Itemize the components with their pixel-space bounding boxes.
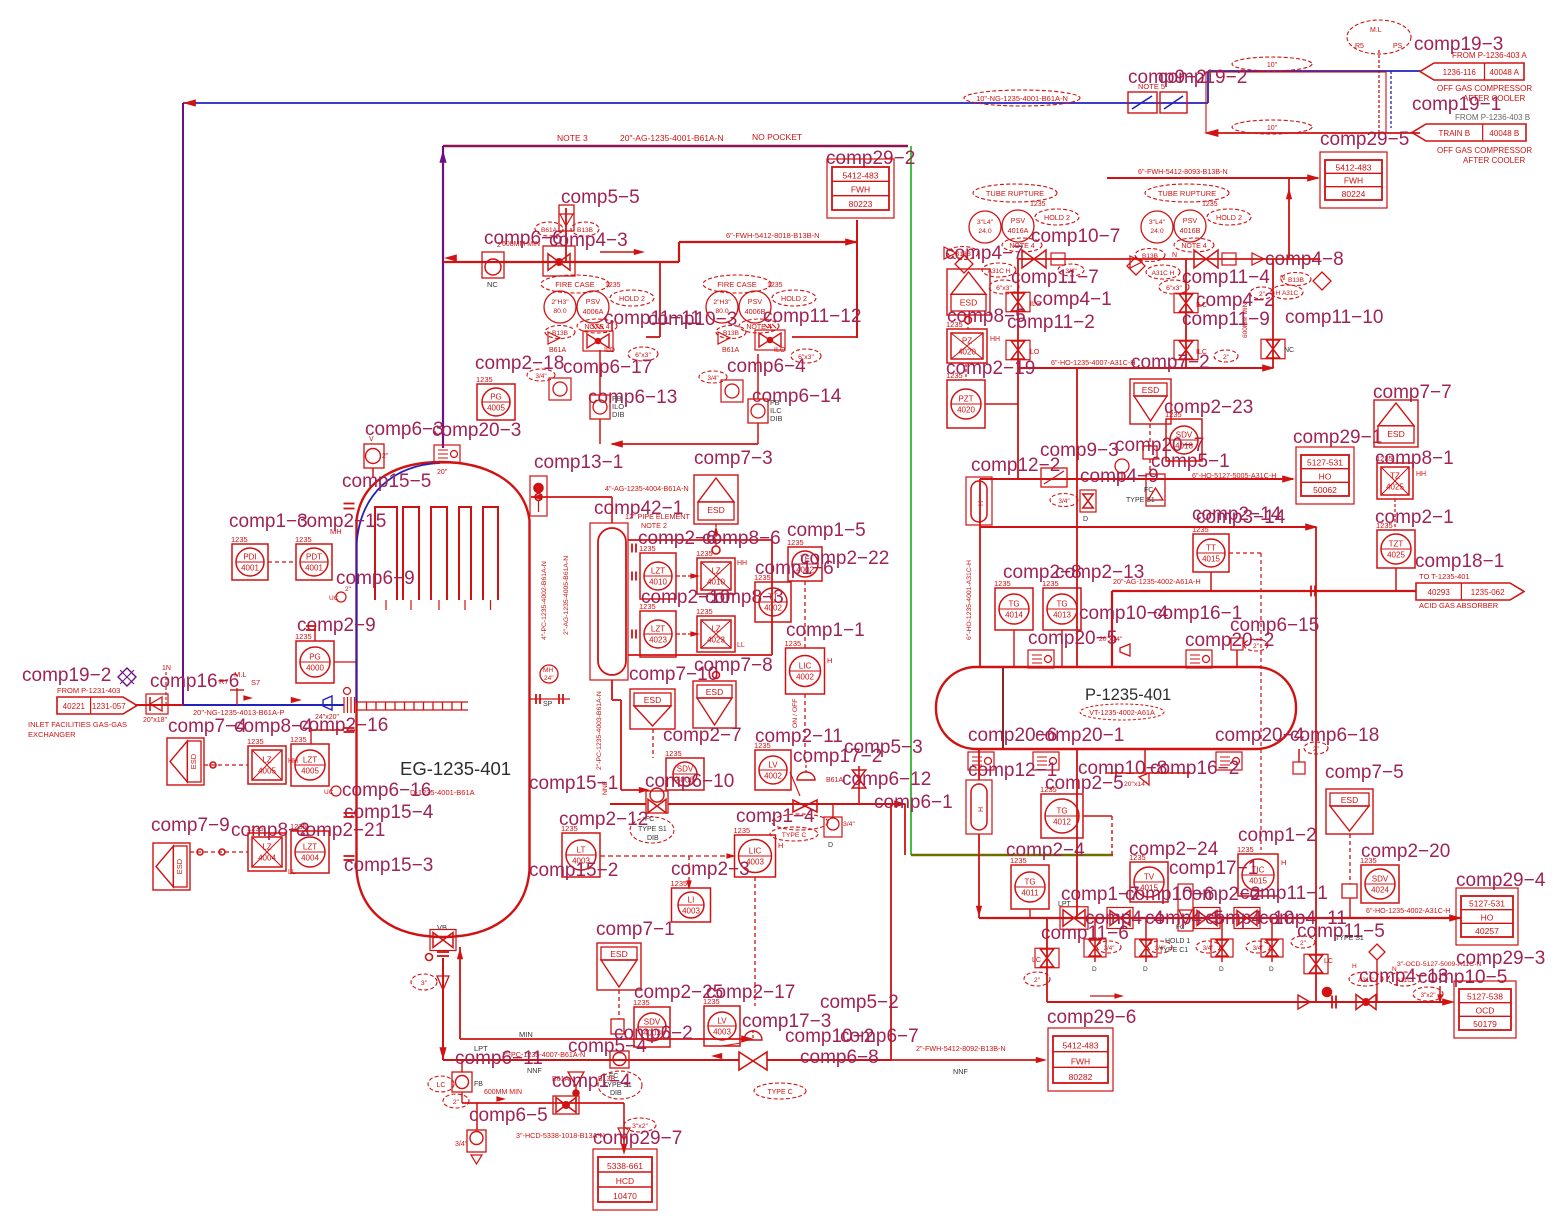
svg-text:20"x14": 20"x14"	[1099, 636, 1123, 643]
svg-text:A31C: A31C	[1358, 977, 1375, 984]
svg-text:LC: LC	[437, 1082, 446, 1089]
svg-text:HOLD 2: HOLD 2	[781, 294, 807, 303]
svg-text:10470: 10470	[613, 1191, 637, 1201]
svg-text:4006A: 4006A	[583, 307, 604, 316]
svg-text:10": 10"	[1267, 62, 1278, 69]
svg-text:SP: SP	[543, 701, 553, 708]
svg-text:6"-HO-5127-5005-A31C-H: 6"-HO-5127-5005-A31C-H	[1192, 471, 1276, 480]
svg-text:comp11−7: comp11−7	[1011, 267, 1099, 288]
svg-text:1235: 1235	[665, 749, 682, 758]
svg-text:PDT: PDT	[306, 553, 322, 562]
svg-text:80223: 80223	[849, 199, 873, 209]
svg-text:TYPE S1: TYPE S1	[1335, 935, 1364, 942]
svg-text:comp8−6: comp8−6	[702, 528, 781, 549]
svg-text:5412-483: 5412-483	[1063, 1041, 1099, 1051]
svg-text:20"x18": 20"x18"	[143, 717, 168, 724]
svg-text:40048 B: 40048 B	[1489, 129, 1519, 138]
svg-text:M.L: M.L	[1370, 27, 1382, 34]
svg-text:4012: 4012	[1053, 818, 1071, 827]
svg-text:4005: 4005	[487, 404, 505, 413]
svg-text:3/4": 3/4"	[1058, 498, 1070, 505]
svg-text:comp2−13: comp2−13	[1055, 562, 1144, 583]
svg-text:H: H	[1352, 963, 1357, 970]
svg-text:4002: 4002	[796, 673, 814, 682]
svg-text:OFF GAS COMPRESSOR: OFF GAS COMPRESSOR	[1437, 146, 1532, 155]
svg-text:LZ: LZ	[262, 843, 271, 852]
svg-text:N: N	[1172, 252, 1177, 259]
svg-text:comp16−1: comp16−1	[1153, 603, 1242, 624]
svg-text:20"-AG-1235-4001-B61A-N: 20"-AG-1235-4001-B61A-N	[620, 133, 724, 143]
svg-text:DIB: DIB	[612, 410, 625, 419]
svg-text:R7: R7	[219, 677, 229, 686]
svg-text:1235: 1235	[946, 320, 963, 329]
svg-text:3/4": 3/4"	[843, 821, 855, 828]
svg-text:1235: 1235	[1010, 856, 1027, 865]
svg-text:LZT: LZT	[303, 843, 317, 852]
svg-text:comp6−16: comp6−16	[342, 780, 431, 801]
svg-text:4010: 4010	[707, 578, 725, 587]
svg-text:ESD: ESD	[610, 949, 627, 959]
svg-text:NO POCKET: NO POCKET	[752, 132, 802, 142]
svg-text:comp2−7: comp2−7	[663, 725, 742, 746]
svg-text:ESD: ESD	[707, 505, 724, 515]
svg-text:1235: 1235	[561, 824, 578, 833]
svg-text:PG: PG	[309, 653, 321, 662]
svg-text:MIN: MIN	[519, 1030, 533, 1039]
svg-text:80.0: 80.0	[715, 308, 728, 315]
svg-text:comp1−4: comp1−4	[552, 1071, 631, 1092]
svg-text:4014: 4014	[1005, 611, 1023, 620]
svg-text:B61A: B61A	[826, 777, 843, 784]
svg-text:6"-HO-1235-4002-A31C-H: 6"-HO-1235-4002-A31C-H	[1366, 906, 1450, 915]
svg-text:D: D	[1269, 966, 1274, 973]
svg-text:3/4": 3/4"	[1104, 945, 1115, 952]
svg-text:PZ: PZ	[962, 337, 972, 346]
svg-text:comp6−17: comp6−17	[563, 357, 652, 378]
svg-text:2": 2"	[382, 453, 389, 460]
svg-text:3/4": 3/4"	[1155, 945, 1166, 952]
svg-text:1235: 1235	[1202, 201, 1218, 208]
svg-text:4016A: 4016A	[1008, 226, 1029, 235]
svg-text:3"L4": 3"L4"	[977, 219, 994, 226]
svg-text:HOLD 2: HOLD 2	[619, 294, 645, 303]
svg-text:24.0: 24.0	[978, 228, 991, 235]
svg-text:NC: NC	[1284, 347, 1294, 354]
svg-text:HOLD 2: HOLD 2	[1044, 213, 1070, 222]
svg-text:1235: 1235	[994, 579, 1011, 588]
svg-text:LV: LV	[768, 761, 778, 770]
svg-text:TT: TT	[768, 593, 778, 602]
svg-text:comp20−1: comp20−1	[1035, 725, 1124, 746]
svg-text:D: D	[1219, 966, 1224, 973]
svg-text:LO: LO	[1030, 349, 1040, 356]
svg-text:H: H	[1281, 858, 1286, 867]
svg-text:comp6−18: comp6−18	[1290, 725, 1379, 746]
svg-text:1235: 1235	[703, 997, 720, 1006]
svg-text:EG-1235-401: EG-1235-401	[400, 758, 511, 779]
svg-text:LV: LV	[717, 1017, 727, 1026]
svg-text:comp5−4: comp5−4	[568, 1036, 647, 1057]
svg-text:4"-AG-1235-4004-B61A-N: 4"-AG-1235-4004-B61A-N	[605, 484, 689, 493]
svg-text:2": 2"	[1034, 977, 1041, 984]
svg-text:comp29−7: comp29−7	[593, 1128, 682, 1149]
svg-text:1235: 1235	[1237, 845, 1254, 854]
svg-text:4016B: 4016B	[1180, 226, 1201, 235]
svg-text:2": 2"	[1253, 643, 1260, 650]
svg-text:1235-062: 1235-062	[1471, 588, 1505, 597]
svg-text:1235: 1235	[247, 737, 264, 746]
svg-text:1235: 1235	[295, 535, 312, 544]
svg-text:SDV: SDV	[1372, 875, 1389, 884]
svg-text:LT: LT	[577, 846, 586, 855]
svg-text:comp29−6: comp29−6	[1047, 1007, 1136, 1028]
svg-text:5412-483: 5412-483	[843, 170, 879, 180]
svg-text:LZT: LZT	[651, 625, 665, 634]
svg-text:PSV: PSV	[1183, 216, 1198, 225]
svg-text:2"H3": 2"H3"	[713, 299, 731, 306]
svg-text:2": 2"	[345, 586, 352, 593]
svg-text:comp2−11: comp2−11	[755, 726, 843, 747]
svg-text:5127-531: 5127-531	[1307, 458, 1343, 468]
svg-text:PSV: PSV	[586, 297, 601, 306]
svg-text:FIRE CASE: FIRE CASE	[717, 280, 757, 289]
svg-text:comp12−1: comp12−1	[968, 760, 1057, 781]
svg-text:5412-483: 5412-483	[1336, 162, 1372, 172]
svg-text:2": 2"	[1223, 354, 1230, 361]
svg-text:3/4": 3/4"	[1203, 945, 1214, 952]
svg-text:ILD: ILD	[604, 347, 615, 354]
svg-text:4004: 4004	[301, 854, 319, 863]
svg-text:4004: 4004	[258, 854, 276, 863]
svg-text:4003: 4003	[713, 1028, 731, 1037]
svg-text:4002: 4002	[764, 772, 782, 781]
svg-text:4023: 4023	[649, 636, 667, 645]
svg-text:comp1−3: comp1−3	[229, 511, 308, 532]
svg-text:HH: HH	[990, 336, 1000, 343]
svg-text:A11C: A11C	[1396, 977, 1412, 984]
svg-text:50062: 50062	[1313, 485, 1337, 495]
svg-text:1236-116: 1236-116	[1443, 68, 1477, 77]
svg-text:ESD: ESD	[189, 753, 198, 769]
svg-text:PSV: PSV	[748, 297, 763, 306]
svg-text:VB: VB	[437, 923, 447, 932]
svg-text:1235: 1235	[787, 538, 804, 547]
svg-text:10"-NG-1235-4001-B61A-N: 10"-NG-1235-4001-B61A-N	[976, 94, 1068, 103]
svg-text:comp7−5: comp7−5	[1325, 762, 1404, 783]
svg-text:ACID GAS ABSORBER: ACID GAS ABSORBER	[1419, 601, 1499, 610]
svg-text:600MM MIN: 600MM MIN	[502, 241, 540, 248]
svg-text:ILO: ILO	[774, 347, 786, 354]
svg-text:4024: 4024	[1371, 886, 1389, 895]
svg-text:comp29−1: comp29−1	[1293, 427, 1382, 448]
svg-text:comp11−2: comp11−2	[1007, 312, 1095, 333]
svg-text:SDV: SDV	[1176, 431, 1193, 440]
svg-text:HH: HH	[737, 560, 747, 567]
svg-text:1235: 1235	[290, 822, 307, 831]
svg-text:5338-661: 5338-661	[607, 1161, 643, 1171]
svg-text:4002: 4002	[764, 604, 782, 613]
svg-text:2"H3": 2"H3"	[551, 299, 569, 306]
svg-text:3"-HCD-5338-1018-B13A-N: 3"-HCD-5338-1018-B13A-N	[516, 1131, 605, 1140]
svg-text:LIC: LIC	[799, 662, 812, 671]
svg-text:80224: 80224	[1342, 189, 1366, 199]
svg-text:B13B: B13B	[1288, 277, 1304, 284]
svg-text:1231-057: 1231-057	[92, 702, 126, 711]
svg-text:comp2−15: comp2−15	[297, 511, 386, 532]
svg-text:B13B: B13B	[723, 330, 739, 337]
svg-text:comp6−4: comp6−4	[727, 356, 806, 377]
svg-text:LC: LC	[1324, 958, 1333, 965]
svg-text:4020: 4020	[957, 406, 975, 415]
svg-text:4001: 4001	[241, 564, 259, 573]
svg-text:TZ: TZ	[1390, 472, 1400, 481]
svg-text:comp7−8: comp7−8	[694, 655, 773, 676]
svg-text:comp9−3: comp9−3	[1040, 440, 1119, 461]
svg-text:40048 A: 40048 A	[1490, 68, 1520, 77]
svg-text:ILC: ILC	[1196, 302, 1207, 309]
svg-text:2": 2"	[453, 1099, 460, 1106]
svg-text:4018: 4018	[1175, 442, 1193, 451]
svg-text:1235: 1235	[734, 826, 751, 835]
svg-text:comp6−8: comp6−8	[800, 1047, 879, 1068]
svg-text:ESD: ESD	[1142, 385, 1159, 395]
svg-text:24": 24"	[544, 675, 554, 682]
svg-text:comp8−1: comp8−1	[1375, 448, 1454, 469]
svg-text:ESD: ESD	[706, 687, 723, 697]
svg-text:2": 2"	[1259, 291, 1266, 298]
svg-text:6"-FWH-5412-8018-B13B-N: 6"-FWH-5412-8018-B13B-N	[726, 231, 820, 240]
svg-text:comp19−2: comp19−2	[22, 665, 111, 686]
svg-text:LZT: LZT	[303, 756, 317, 765]
svg-text:2"-FWH-5412-8092-B13B-N: 2"-FWH-5412-8092-B13B-N	[916, 1044, 1006, 1053]
svg-text:comp18−1: comp18−1	[1415, 551, 1504, 572]
svg-text:4"-PC-1235-4002-B61A-N: 4"-PC-1235-4002-B61A-N	[541, 561, 548, 640]
svg-text:comp5−3: comp5−3	[844, 737, 923, 758]
svg-text:4013: 4013	[1053, 611, 1071, 620]
svg-text:NOTE 4: NOTE 4	[1181, 243, 1206, 250]
svg-text:TUBE RUPTURE: TUBE RUPTURE	[986, 189, 1044, 198]
svg-text:1235: 1235	[476, 375, 493, 384]
svg-text:4015: 4015	[1202, 555, 1220, 564]
svg-text:comp4−1: comp4−1	[1033, 289, 1112, 310]
svg-text:TG: TG	[1008, 600, 1019, 609]
svg-text:LIC: LIC	[749, 847, 762, 856]
svg-text:FIRE CASE: FIRE CASE	[555, 280, 595, 289]
svg-text:1235: 1235	[1030, 201, 1046, 208]
svg-text:1235: 1235	[1040, 785, 1057, 794]
svg-text:comp2−20: comp2−20	[1361, 841, 1450, 862]
svg-text:1235: 1235	[605, 282, 621, 289]
svg-text:comp29−5: comp29−5	[1320, 129, 1409, 150]
svg-text:H: H	[978, 807, 985, 812]
svg-text:S7: S7	[251, 678, 260, 687]
svg-text:TYPE S1: TYPE S1	[1126, 497, 1155, 504]
svg-text:ESD: ESD	[1341, 795, 1358, 805]
svg-text:EXCHANGER: EXCHANGER	[28, 730, 76, 739]
svg-text:2": 2"	[1313, 746, 1320, 753]
svg-text:AFTER COOLER: AFTER COOLER	[1463, 156, 1525, 165]
svg-text:4001: 4001	[305, 564, 323, 573]
svg-text:comp6−13: comp6−13	[588, 387, 677, 408]
svg-text:comp7−3: comp7−3	[694, 448, 773, 469]
svg-text:comp10−5: comp10−5	[1418, 967, 1507, 988]
svg-text:comp6−5: comp6−5	[469, 1105, 548, 1126]
svg-text:P-1235-401: P-1235-401	[1085, 686, 1171, 704]
svg-text:comp2−5: comp2−5	[1045, 773, 1124, 794]
svg-text:comp7−2: comp7−2	[1131, 352, 1210, 373]
svg-text:D: D	[1143, 966, 1148, 973]
svg-text:PSV: PSV	[1011, 216, 1026, 225]
svg-text:1235: 1235	[1376, 521, 1393, 530]
svg-text:LZ: LZ	[711, 625, 720, 634]
svg-text:4010: 4010	[649, 578, 667, 587]
svg-text:UC: UC	[329, 595, 339, 602]
svg-text:12" PIPE ELEMENT: 12" PIPE ELEMENT	[625, 512, 690, 521]
svg-text:HO: HO	[1481, 912, 1494, 922]
svg-text:comp1−1: comp1−1	[786, 620, 865, 641]
svg-text:TYPE C: TYPE C	[767, 1089, 792, 1096]
svg-text:comp15−3: comp15−3	[344, 855, 433, 876]
svg-text:FWH: FWH	[1344, 176, 1363, 186]
svg-text:50179: 50179	[1473, 1019, 1497, 1029]
svg-text:TO T-1235-401: TO T-1235-401	[1419, 572, 1470, 581]
svg-text:24.0: 24.0	[1150, 228, 1163, 235]
svg-text:comp11−12: comp11−12	[763, 306, 861, 327]
svg-text:5127-531: 5127-531	[1469, 899, 1505, 909]
svg-text:TUBE RUPTURE: TUBE RUPTURE	[1158, 189, 1216, 198]
svg-text:2": 2"	[1300, 940, 1307, 947]
svg-text:4011: 4011	[1021, 889, 1039, 898]
svg-text:4005: 4005	[258, 767, 276, 776]
svg-text:TG: TG	[1024, 878, 1035, 887]
svg-text:TIC: TIC	[1252, 866, 1265, 875]
svg-text:comp6−1: comp6−1	[874, 792, 953, 813]
svg-text:FB: FB	[474, 1081, 483, 1088]
svg-text:comp4−9: comp4−9	[1080, 466, 1159, 487]
svg-text:comp2−3: comp2−3	[671, 859, 750, 880]
svg-text:comp13−1: comp13−1	[534, 452, 623, 473]
svg-text:4000: 4000	[306, 664, 324, 673]
svg-text:1235: 1235	[247, 824, 264, 833]
svg-text:600MM MIN: 600MM MIN	[484, 1089, 522, 1096]
svg-text:HCD: HCD	[616, 1176, 634, 1186]
svg-text:40221: 40221	[63, 702, 86, 711]
svg-text:A31C H: A31C H	[1152, 270, 1175, 277]
svg-text:LI: LI	[688, 896, 695, 905]
svg-text:VT-1235-4002-A61A: VT-1235-4002-A61A	[1089, 708, 1155, 717]
svg-text:1235: 1235	[696, 607, 713, 616]
svg-text:4020: 4020	[958, 348, 976, 357]
svg-text:H A31C: H A31C	[1276, 290, 1299, 297]
svg-text:OCD: OCD	[1476, 1005, 1495, 1015]
svg-text:D: D	[1083, 516, 1088, 523]
svg-text:HH: HH	[1416, 471, 1426, 478]
svg-text:4003: 4003	[682, 907, 700, 916]
svg-text:comp15−1: comp15−1	[529, 773, 618, 794]
svg-text:comp11−1: comp11−1	[1240, 883, 1328, 904]
svg-text:LZ: LZ	[711, 567, 720, 576]
svg-text:3"L4": 3"L4"	[1149, 219, 1166, 226]
svg-text:comp17−1: comp17−1	[1169, 858, 1258, 879]
svg-text:H: H	[778, 841, 783, 850]
svg-text:comp1−6: comp1−6	[755, 558, 834, 579]
svg-text:PG: PG	[490, 393, 502, 402]
svg-text:1235: 1235	[946, 371, 963, 380]
svg-text:comp7−1: comp7−1	[596, 919, 675, 940]
svg-text:TZT: TZT	[1389, 540, 1404, 549]
svg-text:NOTE 3: NOTE 3	[557, 133, 588, 143]
svg-text:3/4": 3/4"	[455, 1141, 468, 1148]
svg-text:4025: 4025	[1387, 551, 1405, 560]
svg-text:TYPE C: TYPE C	[782, 832, 807, 839]
svg-text:DIB: DIB	[647, 835, 659, 842]
svg-text:FROM P-1231-403: FROM P-1231-403	[57, 686, 120, 695]
svg-text:1235: 1235	[671, 879, 688, 888]
svg-text:comp1−2: comp1−2	[1238, 825, 1317, 846]
svg-text:comp5−2: comp5−2	[820, 992, 899, 1013]
svg-text:3": 3"	[421, 980, 428, 987]
svg-text:comp6−11: comp6−11	[455, 1048, 543, 1069]
svg-text:comp19−1: comp19−1	[1412, 94, 1501, 115]
svg-text:comp6−12: comp6−12	[842, 769, 931, 790]
svg-text:D: D	[828, 842, 833, 849]
svg-text:comp6−15: comp6−15	[1230, 615, 1319, 636]
svg-text:comp10−7: comp10−7	[1031, 226, 1120, 247]
svg-text:FROM P-1236-403 A: FROM P-1236-403 A	[1452, 51, 1527, 60]
svg-text:FROM P-1236-403 B: FROM P-1236-403 B	[1455, 113, 1530, 122]
svg-text:4025: 4025	[1386, 483, 1404, 492]
svg-text:B61A: B61A	[722, 347, 739, 354]
svg-text:4005: 4005	[301, 767, 319, 776]
svg-text:6"-HO-1235-4007-A31C-H: 6"-HO-1235-4007-A31C-H	[1051, 358, 1135, 367]
svg-text:3/4": 3/4"	[707, 375, 719, 382]
svg-text:TV: TV	[1144, 873, 1155, 882]
svg-text:TG: TG	[1056, 600, 1067, 609]
svg-text:40257: 40257	[1475, 926, 1499, 936]
svg-text:ESD: ESD	[644, 695, 661, 705]
svg-text:6"x3": 6"x3"	[1166, 285, 1182, 292]
svg-text:comp6−7: comp6−7	[840, 1026, 919, 1047]
svg-text:comp15−2: comp15−2	[529, 860, 618, 881]
svg-text:1N: 1N	[162, 665, 171, 672]
svg-text:comp15−5: comp15−5	[342, 471, 431, 492]
svg-text:3/4": 3/4"	[535, 373, 547, 380]
svg-text:comp29−4: comp29−4	[1456, 870, 1546, 891]
svg-text:1235: 1235	[1192, 525, 1209, 534]
svg-text:TG: TG	[1056, 807, 1067, 816]
svg-text:6"-HO-1235-4001-A31C-H: 6"-HO-1235-4001-A31C-H	[966, 560, 973, 640]
svg-text:DIB: DIB	[770, 414, 783, 423]
svg-text:comp20−3: comp20−3	[432, 420, 521, 441]
svg-text:INLET FACILITIES GAS-GAS: INLET FACILITIES GAS-GAS	[28, 720, 127, 729]
svg-text:HOLD 2: HOLD 2	[1216, 213, 1242, 222]
svg-text:TRAIN B: TRAIN B	[1439, 129, 1471, 138]
svg-text:comp7−9: comp7−9	[151, 815, 230, 836]
svg-text:1235: 1235	[767, 282, 783, 289]
svg-text:1235: 1235	[696, 549, 713, 558]
svg-text:comp19−2: comp19−2	[1158, 67, 1247, 88]
svg-text:1235: 1235	[1042, 579, 1059, 588]
svg-text:NNF: NNF	[953, 1067, 968, 1076]
svg-text:R5: R5	[1355, 43, 1364, 50]
svg-text:M.L: M.L	[234, 670, 247, 679]
svg-text:4023: 4023	[707, 636, 725, 645]
svg-text:2"-AG-1235-4005-B61A-N: 2"-AG-1235-4005-B61A-N	[563, 556, 570, 635]
svg-text:FC: FC	[1144, 487, 1153, 494]
svg-text:10": 10"	[1267, 125, 1278, 132]
svg-text:1235: 1235	[1165, 410, 1182, 419]
svg-text:B13B: B13B	[552, 330, 568, 337]
